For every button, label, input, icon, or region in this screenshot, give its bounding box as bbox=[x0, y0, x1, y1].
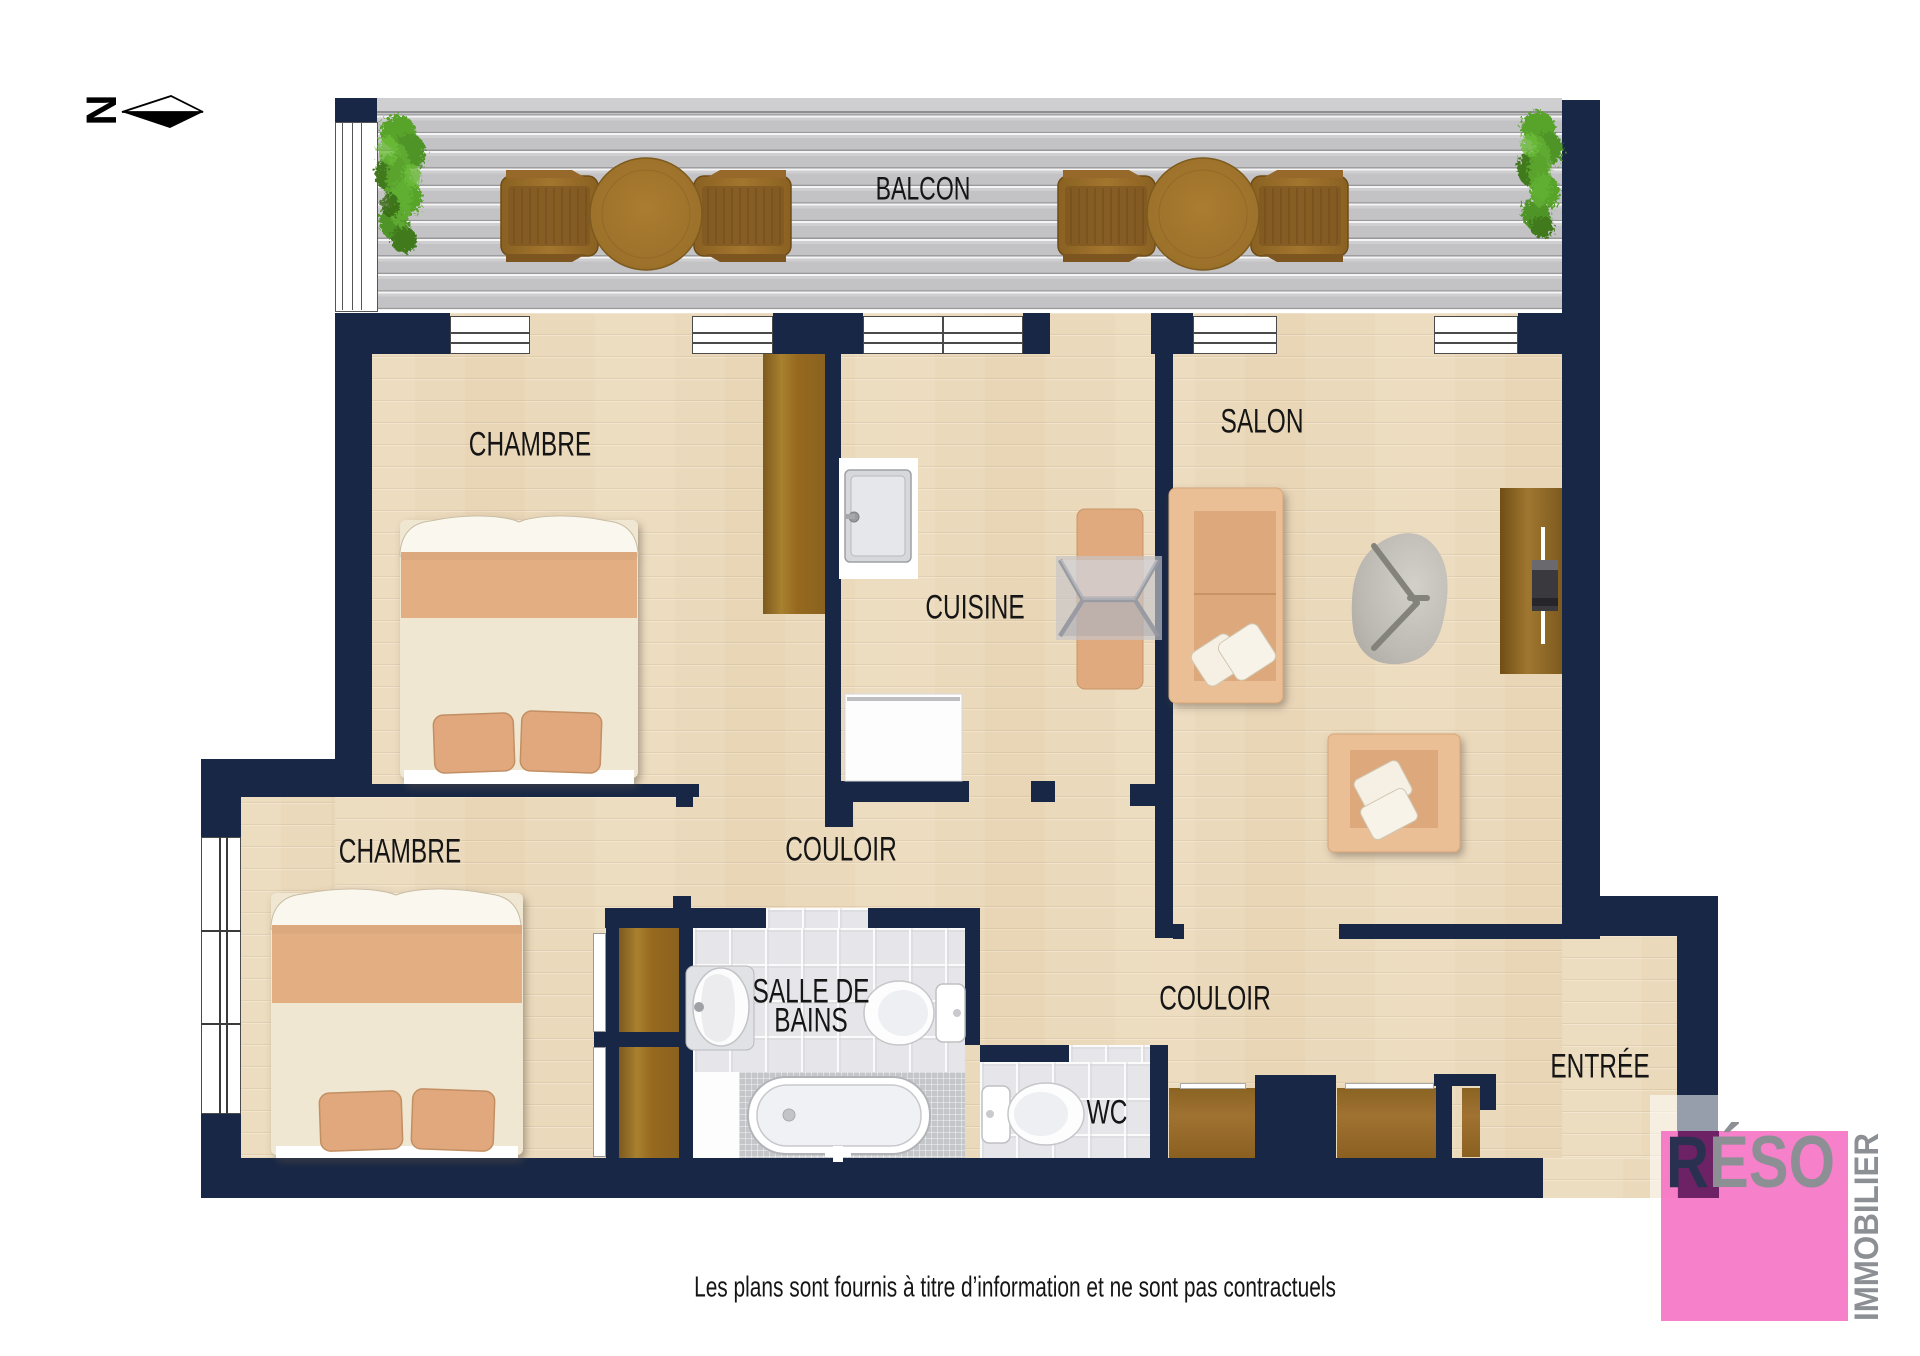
svg-text:R: R bbox=[1666, 1122, 1709, 1203]
svg-text:ÉSO: ÉSO bbox=[1709, 1122, 1835, 1203]
svg-text:IMMOBILIER: IMMOBILIER bbox=[1848, 1133, 1886, 1321]
svg-text:N: N bbox=[78, 94, 126, 125]
